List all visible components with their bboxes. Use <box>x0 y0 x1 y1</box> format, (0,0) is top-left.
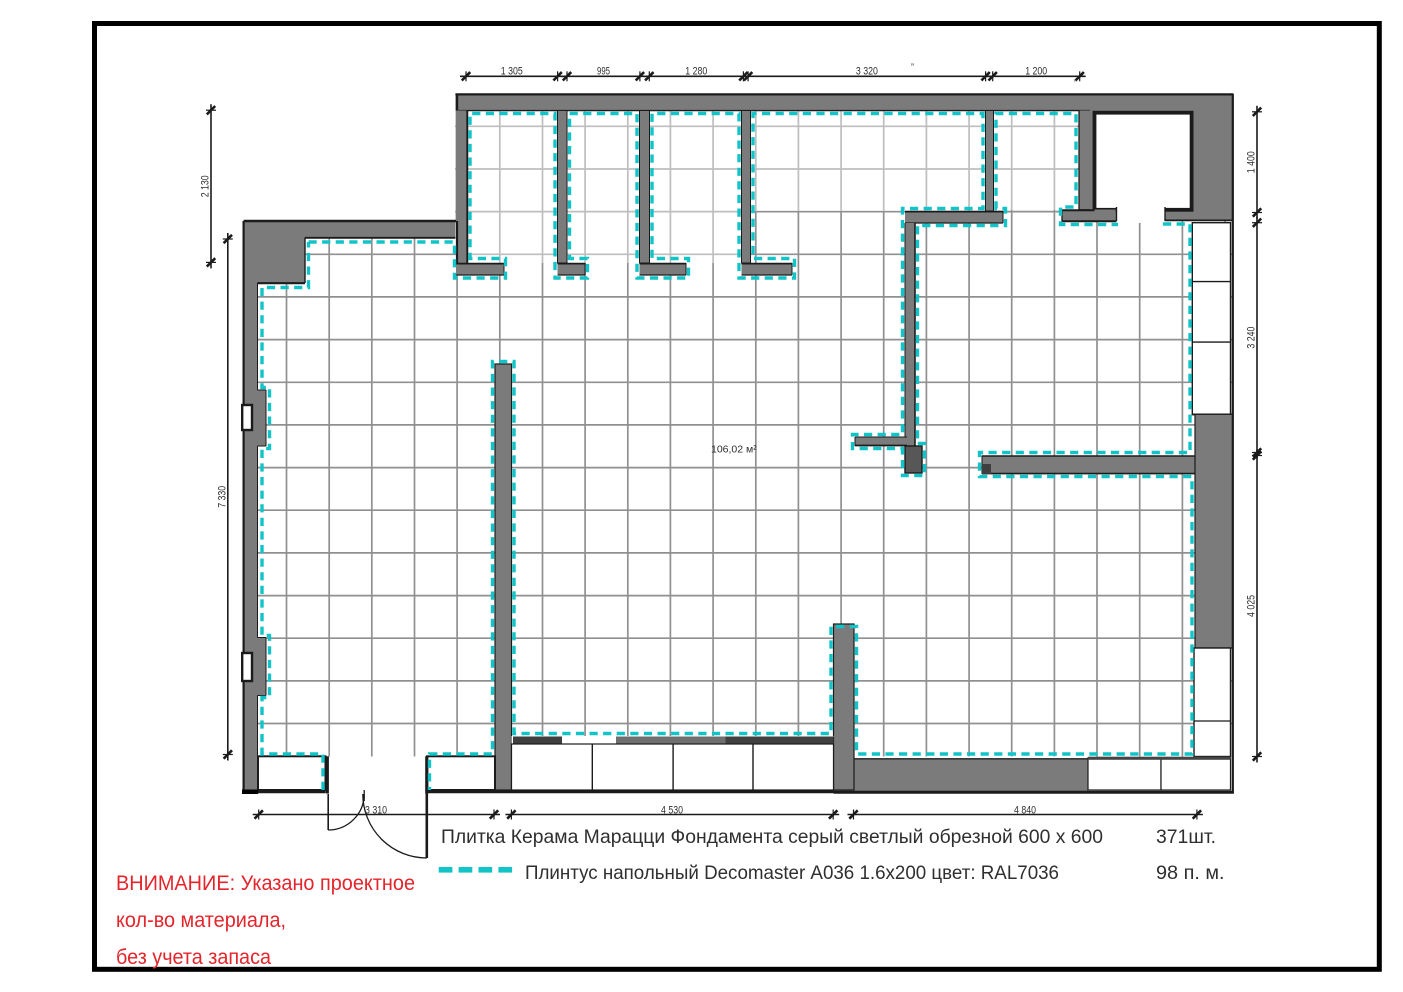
svg-text:106,02 м²: 106,02 м² <box>711 444 757 456</box>
svg-text:1 280: 1 280 <box>685 66 707 78</box>
svg-text:1 305: 1 305 <box>501 66 523 78</box>
svg-text:3 320: 3 320 <box>856 66 878 78</box>
svg-text:”: ” <box>911 62 914 72</box>
svg-text:3 240: 3 240 <box>1246 327 1258 349</box>
svg-text:7 330: 7 330 <box>216 486 228 508</box>
svg-text:ВНИМАНИЕ: Указано проектное: ВНИМАНИЕ: Указано проектное <box>116 871 415 895</box>
svg-text:4 025: 4 025 <box>1246 595 1258 617</box>
svg-text:98 п. м.: 98 п. м. <box>1156 863 1225 884</box>
svg-text:без учета запаса: без учета запаса <box>116 945 271 969</box>
svg-text:”: ” <box>1074 78 1077 88</box>
svg-text:2 130: 2 130 <box>200 175 212 197</box>
svg-text:3 310: 3 310 <box>365 805 387 817</box>
svg-text:4 840: 4 840 <box>1014 805 1036 817</box>
svg-text:995: 995 <box>597 66 610 78</box>
svg-text:4 530: 4 530 <box>661 805 683 817</box>
svg-text:1 200: 1 200 <box>1025 66 1047 78</box>
svg-text:Плинтус напольный Decomaster А: Плинтус напольный Decomaster А036 1.6х20… <box>525 863 1059 884</box>
svg-text:371шт.: 371шт. <box>1156 827 1216 848</box>
svg-text:Плитка Керама Марацци Фондамен: Плитка Керама Марацци Фондамента серый с… <box>441 827 1103 848</box>
svg-text:кол-во материала,: кол-во материала, <box>116 908 286 932</box>
svg-text:1 400: 1 400 <box>1246 151 1258 173</box>
